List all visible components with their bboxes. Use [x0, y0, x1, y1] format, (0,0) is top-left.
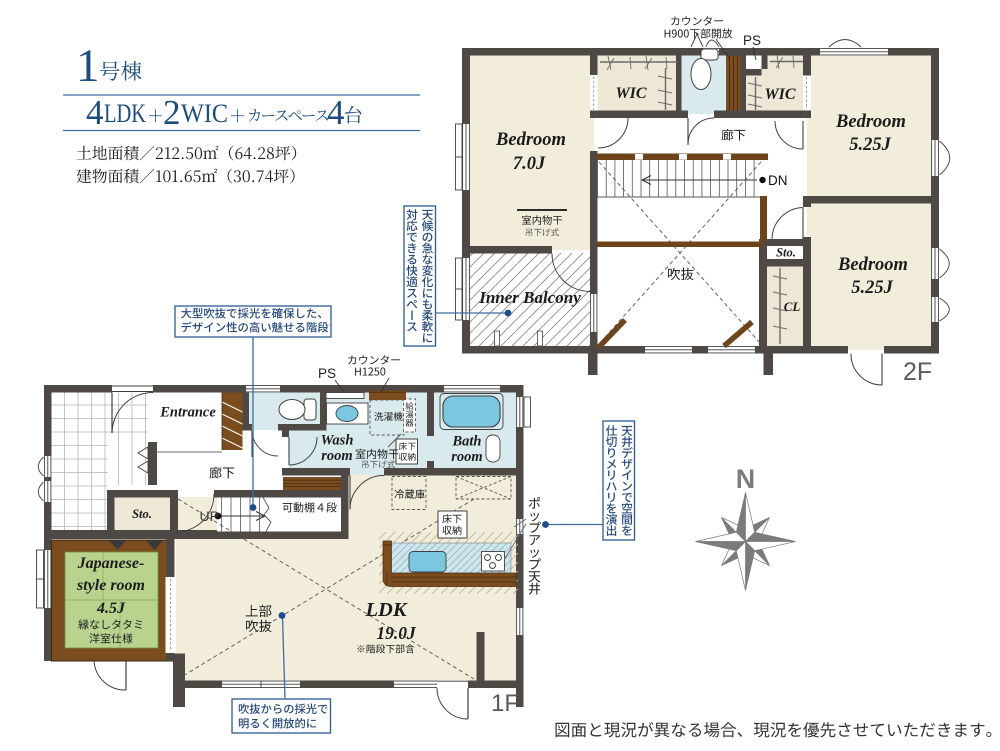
svg-text:Bath: Bath: [451, 434, 481, 450]
svg-text:UP: UP: [200, 508, 219, 524]
svg-text:style room: style room: [76, 577, 145, 594]
svg-text:PS: PS: [743, 33, 761, 48]
svg-text:4: 4: [327, 93, 345, 132]
svg-text:Bedroom: Bedroom: [837, 255, 908, 275]
svg-text:1: 1: [76, 40, 100, 92]
svg-text:4.5J: 4.5J: [96, 600, 126, 617]
svg-text:4: 4: [86, 93, 104, 132]
svg-text:Japanese-: Japanese-: [77, 555, 145, 572]
svg-text:1F: 1F: [491, 690, 519, 717]
svg-text:PS: PS: [318, 366, 336, 381]
svg-text:5.25J: 5.25J: [851, 278, 893, 298]
svg-text:N: N: [736, 464, 756, 494]
svg-text:Sto.: Sto.: [132, 507, 152, 521]
svg-text:WIC: WIC: [181, 99, 228, 128]
svg-text:5.25J: 5.25J: [849, 135, 891, 155]
svg-text:Bedroom: Bedroom: [835, 112, 906, 132]
svg-text:LDK: LDK: [104, 99, 146, 128]
svg-text:Inner Balcony: Inner Balcony: [478, 288, 581, 307]
svg-text:CL: CL: [784, 299, 801, 314]
svg-text:2: 2: [163, 93, 181, 132]
svg-text:DN: DN: [768, 173, 788, 188]
svg-text:room: room: [321, 448, 352, 464]
svg-text:Wash: Wash: [321, 433, 354, 449]
svg-text:2F: 2F: [903, 358, 932, 386]
svg-text:7.0J: 7.0J: [513, 154, 546, 174]
svg-text:LDK: LDK: [365, 599, 408, 621]
svg-text:room: room: [451, 449, 482, 465]
svg-text:19.0J: 19.0J: [376, 623, 417, 643]
svg-text:Bedroom: Bedroom: [495, 130, 566, 150]
svg-text:WIC: WIC: [615, 85, 646, 102]
svg-text:Sto.: Sto.: [776, 246, 796, 260]
svg-text:Entrance: Entrance: [159, 405, 216, 421]
svg-text:WIC: WIC: [764, 86, 795, 103]
